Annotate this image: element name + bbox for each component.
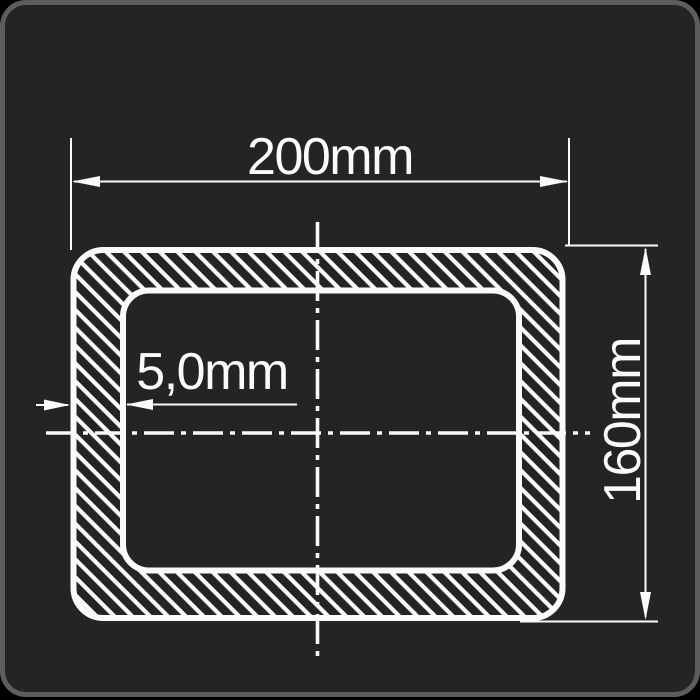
height-arrow-top-icon xyxy=(640,247,651,275)
screenshot-stage: 200mm 160mm 5,0mm xyxy=(0,0,700,700)
width-dimension-label: 200mm xyxy=(247,128,413,186)
width-dimension: 200mm xyxy=(71,128,569,250)
thickness-dimension-label: 5,0mm xyxy=(136,343,287,401)
height-dimension-label: 160mm xyxy=(594,338,652,504)
tube-inner-outline xyxy=(123,291,519,571)
height-arrow-bottom-icon xyxy=(640,592,651,620)
thickness-arrow-outside-icon xyxy=(44,400,70,411)
width-arrow-left-icon xyxy=(72,176,100,187)
width-arrow-right-icon xyxy=(540,176,568,187)
cross-section-drawing: 200mm 160mm 5,0mm xyxy=(0,0,700,700)
